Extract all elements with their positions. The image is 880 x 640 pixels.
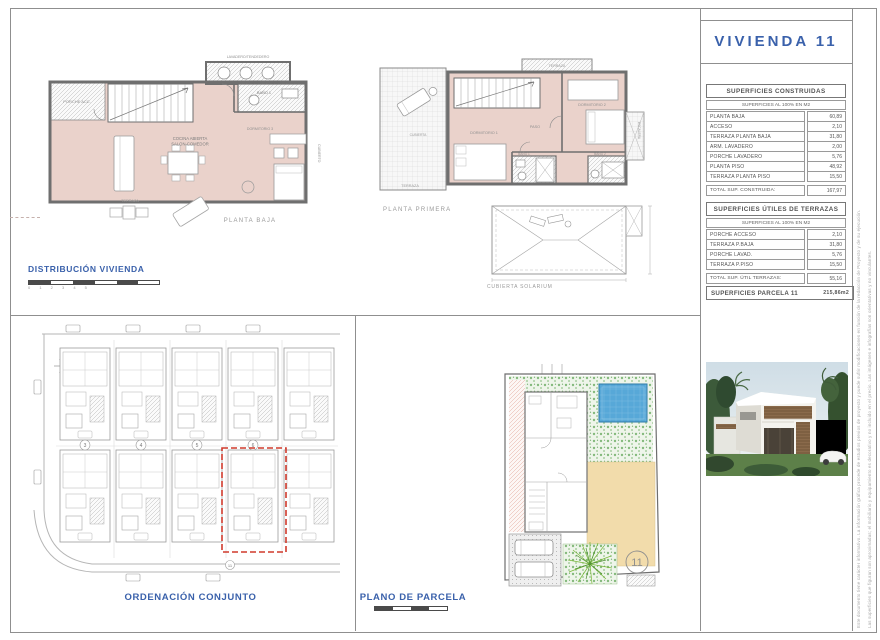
table-superficies-terrazas: SUPERFICIES ÚTILES DE TERRAZAS SUPERFICI… xyxy=(706,202,846,284)
room-label-bano1: BAÑO 1 xyxy=(257,90,271,95)
room-label-terraza: TERRAZA xyxy=(121,199,139,203)
section-title-plano-parcela: PLANO DE PARCELA xyxy=(358,592,468,603)
plan-caption-planta-baja: PLANTA BAJA xyxy=(205,218,295,224)
centerline-stub xyxy=(10,217,40,218)
unit-number: 3 xyxy=(84,443,87,449)
disclaimer-line-1: Este documento tiene carácter informativ… xyxy=(854,12,863,628)
row-label: TERRAZA P.PISO xyxy=(706,259,805,270)
section-title-distribucion: DISTRIBUCIÓN VIVIENDA xyxy=(28,264,145,274)
row-label: TERRAZA PLANTA PISO xyxy=(706,171,805,182)
total-label: TOTAL SUP. CONSTRUIDA: xyxy=(706,185,805,196)
total-value: 167,97 xyxy=(807,185,846,196)
room-label-cubierta: CUBIERTA xyxy=(410,133,428,137)
parcel-plan: 11 xyxy=(487,362,672,590)
room-label-dormitorio2: DORMITORIO 2 xyxy=(578,103,606,107)
room-label-cocina: COCINA ABIERTA xyxy=(173,136,208,141)
room-label-terraza-top: TERRAZA xyxy=(549,64,566,68)
roofplan-cubierta xyxy=(478,202,663,284)
table-total-row: TOTAL SUP. CONSTRUIDA: 167,97 xyxy=(706,185,846,196)
parcel-number: 11 xyxy=(631,557,642,569)
plan-caption-cubierta: CUBIERTA SOLARIUM xyxy=(487,284,553,290)
render-house xyxy=(736,392,816,454)
room-label-terraza1: TERRAZA xyxy=(401,184,419,188)
table-total-row: TOTAL SUP. ÚTIL TERRAZAS: 55,16 xyxy=(706,273,846,284)
room-label-dormitorio1: DORMITORIO 1 xyxy=(470,131,498,135)
row-value: 15,50 xyxy=(807,259,846,270)
room-label-porche: PORCHE ACC. xyxy=(63,99,91,104)
drawing-sheet: VIVIENDA 11 xyxy=(0,0,880,640)
room-label-dormitorio3: DORMITORIO 3 xyxy=(247,127,273,131)
disclaimer-line-2: Las superficies que figuran son aproxima… xyxy=(865,12,874,628)
superficies-parcela: SUPERFICIES PARCELA 11 215,86m2 xyxy=(706,286,854,300)
floorplan-planta-primera: TERRAZA CUBIERTA DORMITORIO 1 PASO DORMI… xyxy=(372,56,662,206)
section-title-ordenacion: ORDENACIÓN CONJUNTO xyxy=(26,592,355,603)
room-label-salon: SALON-COMEDOR xyxy=(171,142,208,147)
room-label-escalera: ESCALERA xyxy=(637,122,641,140)
titleblock-divider xyxy=(700,8,701,631)
table-subtitle: SUPERFICIES AL 100% EN M2 xyxy=(706,100,846,110)
floorplan-planta-baja: PORCHE ACC. LAVADERO/TENDEDERO BAÑO 1 CO… xyxy=(38,44,338,229)
parcel-house xyxy=(525,392,587,532)
table-row: TERRAZA P.PISO15,50 xyxy=(706,259,846,270)
title-cell-bottom xyxy=(700,63,852,64)
disclaimer-divider xyxy=(852,8,853,631)
table-title: SUPERFICIES ÚTILES DE TERRAZAS xyxy=(706,202,846,216)
plan-caption-planta-primera: PLANTA PRIMERA xyxy=(383,207,483,213)
room-label-bano2: BAÑO 2 xyxy=(594,151,606,156)
table-rows: PLANTA BAJA60,89ACCESO2,10TERRAZA PLANTA… xyxy=(706,111,846,182)
table-superficies-construidas: SUPERFICIES CONSTRUIDAS SUPERFICIES AL 1… xyxy=(706,84,846,196)
parcela-label: SUPERFICIES PARCELA 11 xyxy=(711,290,798,297)
parcela-value: 215,86m2 xyxy=(823,290,849,296)
table-row: TERRAZA PLANTA PISO15,50 xyxy=(706,171,846,182)
row-value: 15,50 xyxy=(807,171,846,182)
room-label-paso: PASO xyxy=(530,125,540,129)
room-label-lavadero: LAVADERO/TENDEDERO xyxy=(227,55,270,59)
site-plan: 3 4 5 6 11 xyxy=(26,320,346,585)
table-rows: PORCHE ACCESO2,10TERRAZA P.BAJA31,80PORC… xyxy=(706,229,846,270)
unit-number: 4 xyxy=(140,443,143,449)
scale-ticks: 0 1 2 3 4 5 xyxy=(28,285,91,290)
table-title: SUPERFICIES CONSTRUIDAS xyxy=(706,84,846,98)
total-label: TOTAL SUP. ÚTIL TERRAZAS: xyxy=(706,273,805,284)
unit-number: 5 xyxy=(196,443,199,449)
table-subtitle: SUPERFICIES AL 100% EN M2 xyxy=(706,218,846,228)
page-title: VIVIENDA 11 xyxy=(700,20,852,63)
room-label-cubierto: CUBIERTO xyxy=(317,144,321,163)
bottom-divider xyxy=(355,315,356,631)
room-label-bano1: BAÑO 1 xyxy=(518,151,530,156)
total-value: 55,16 xyxy=(807,273,846,284)
legal-disclaimer: Este documento tiene carácter informativ… xyxy=(854,12,875,628)
house-render xyxy=(706,362,848,476)
parcel-scale-bar xyxy=(374,606,448,611)
